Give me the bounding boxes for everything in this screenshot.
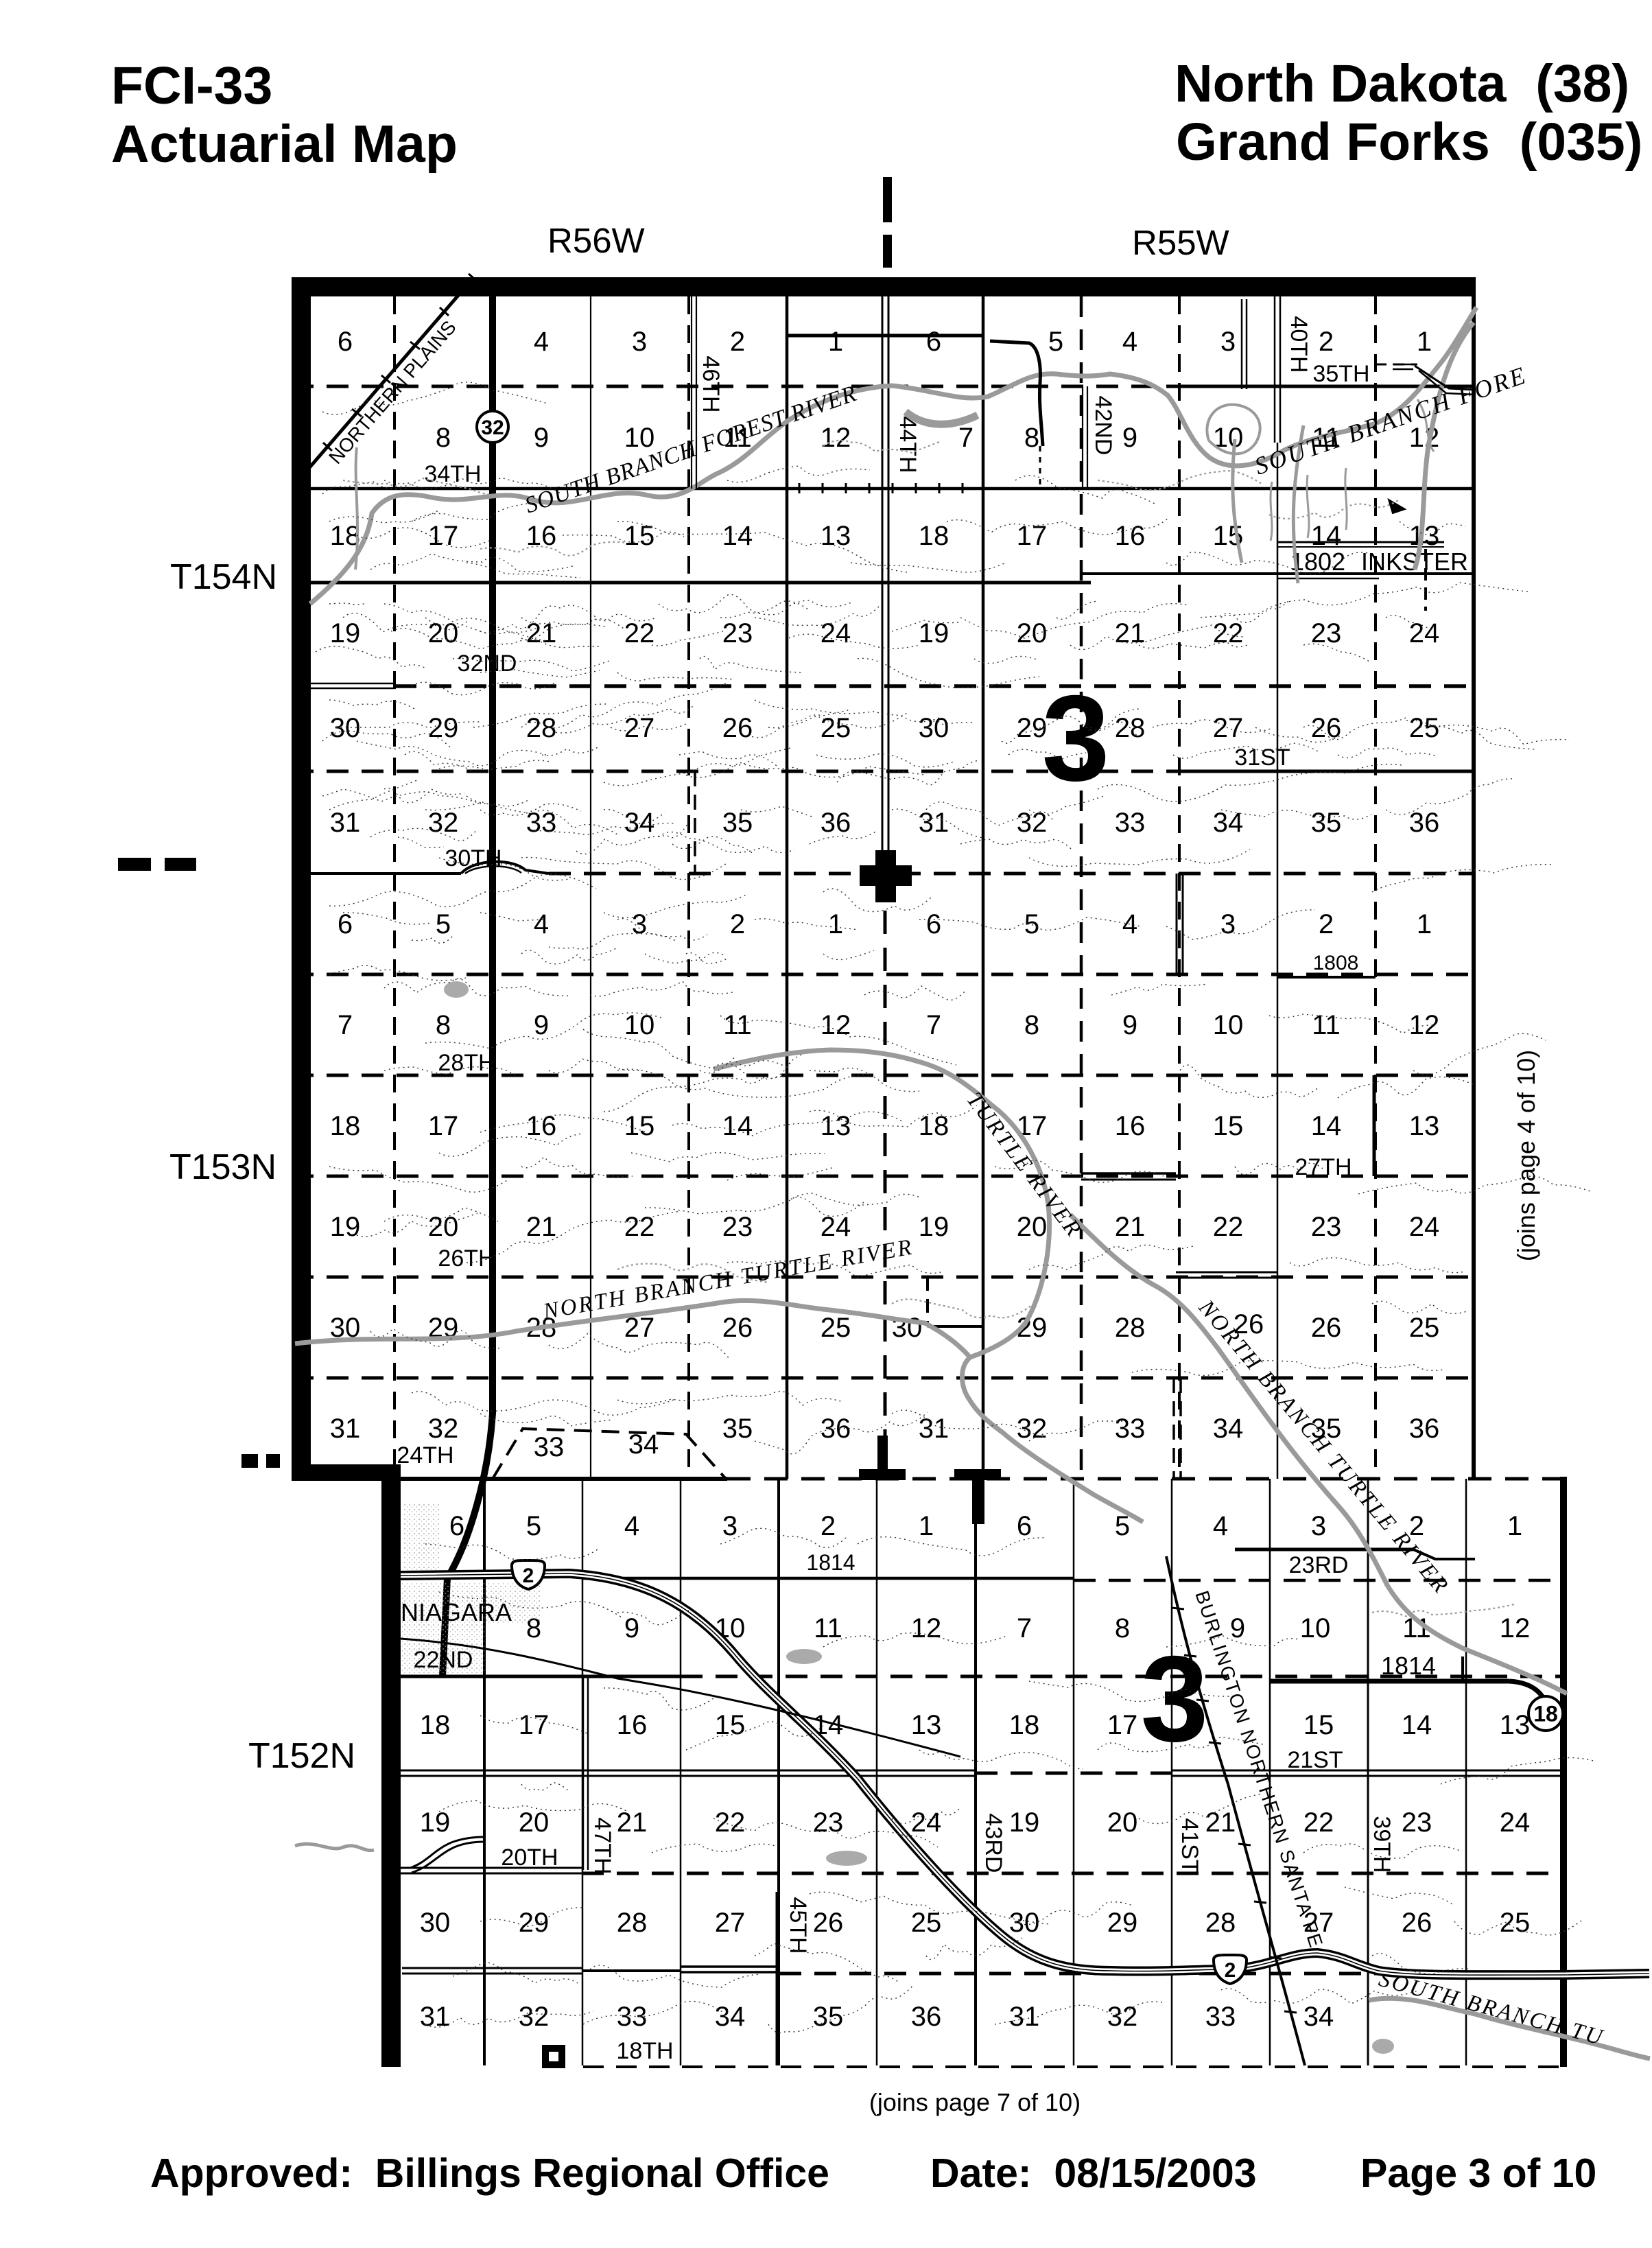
svg-text:28: 28 <box>617 1908 648 1938</box>
svg-text:28TH: 28TH <box>438 1050 495 1076</box>
svg-text:29: 29 <box>519 1908 550 1938</box>
svg-text:36: 36 <box>821 808 851 838</box>
svg-text:12: 12 <box>1500 1613 1531 1643</box>
svg-text:45TH: 45TH <box>785 1897 811 1954</box>
svg-text:32: 32 <box>1107 2002 1138 2032</box>
svg-text:46TH: 46TH <box>698 355 724 412</box>
svg-text:10: 10 <box>1213 1010 1244 1040</box>
svg-text:18TH: 18TH <box>616 2038 673 2064</box>
svg-text:10: 10 <box>624 1010 655 1040</box>
svg-text:13: 13 <box>1409 1111 1440 1141</box>
svg-text:12: 12 <box>1409 1010 1440 1040</box>
svg-text:22: 22 <box>624 618 655 648</box>
svg-text:31: 31 <box>919 808 949 838</box>
svg-text:26TH: 26TH <box>438 1245 495 1272</box>
svg-text:41ST: 41ST <box>1177 1818 1203 1873</box>
svg-text:24: 24 <box>1409 1212 1440 1242</box>
svg-text:35: 35 <box>722 808 753 838</box>
svg-text:23: 23 <box>813 1807 844 1838</box>
svg-text:14: 14 <box>722 521 753 551</box>
svg-text:23: 23 <box>722 618 753 648</box>
svg-text:34TH: 34TH <box>424 461 481 487</box>
svg-text:20: 20 <box>428 1212 459 1242</box>
svg-text:21: 21 <box>617 1807 648 1838</box>
svg-text:2: 2 <box>1319 327 1334 357</box>
svg-text:5: 5 <box>1024 909 1039 939</box>
svg-text:22ND: 22ND <box>414 1647 473 1673</box>
svg-text:10: 10 <box>624 423 655 453</box>
svg-text:24TH: 24TH <box>397 1442 453 1468</box>
svg-text:R56W: R56W <box>547 221 645 260</box>
svg-text:32: 32 <box>1017 808 1048 838</box>
svg-text:6: 6 <box>1017 1511 1032 1541</box>
svg-text:26: 26 <box>722 1313 753 1343</box>
svg-text:2: 2 <box>821 1511 836 1541</box>
svg-text:20: 20 <box>519 1807 550 1838</box>
svg-text:32: 32 <box>519 2002 550 2032</box>
svg-text:22: 22 <box>1213 1212 1244 1242</box>
svg-text:8: 8 <box>1024 1010 1039 1040</box>
svg-text:23: 23 <box>722 1212 753 1242</box>
svg-text:28: 28 <box>1115 1313 1146 1343</box>
svg-text:21ST: 21ST <box>1287 1747 1343 1773</box>
svg-text:18: 18 <box>1009 1710 1040 1740</box>
svg-text:26: 26 <box>722 713 753 743</box>
svg-text:12: 12 <box>821 423 851 453</box>
svg-text:20: 20 <box>428 618 459 648</box>
svg-text:34: 34 <box>1213 808 1244 838</box>
svg-text:20TH: 20TH <box>501 1845 558 1871</box>
svg-text:29: 29 <box>1107 1908 1138 1938</box>
svg-text:34: 34 <box>628 1429 659 1460</box>
svg-text:12: 12 <box>821 1010 851 1040</box>
svg-text:26: 26 <box>1402 1908 1432 1938</box>
svg-text:6: 6 <box>338 327 353 357</box>
svg-text:Page 3 of 10: Page 3 of 10 <box>1360 2151 1596 2196</box>
svg-text:17: 17 <box>428 1111 459 1141</box>
svg-text:24: 24 <box>821 618 851 648</box>
svg-text:24: 24 <box>821 1212 851 1242</box>
svg-text:42ND: 42ND <box>1090 396 1116 456</box>
svg-text:30: 30 <box>330 713 361 743</box>
svg-text:17: 17 <box>428 521 459 551</box>
svg-text:6: 6 <box>449 1511 464 1541</box>
svg-text:25: 25 <box>911 1908 942 1938</box>
svg-text:11: 11 <box>814 1613 842 1643</box>
svg-text:18: 18 <box>919 1111 949 1141</box>
svg-text:13: 13 <box>821 1111 851 1141</box>
svg-text:4: 4 <box>1122 909 1137 939</box>
svg-text:25: 25 <box>1409 713 1440 743</box>
svg-text:31: 31 <box>1009 2002 1040 2032</box>
svg-text:28: 28 <box>1205 1908 1236 1938</box>
svg-text:6: 6 <box>926 909 941 939</box>
svg-text:21: 21 <box>1205 1807 1236 1838</box>
svg-text:14: 14 <box>1311 521 1342 551</box>
svg-text:31: 31 <box>330 1414 361 1444</box>
svg-text:3: 3 <box>1220 327 1236 357</box>
svg-text:20: 20 <box>1017 618 1048 648</box>
svg-text:4: 4 <box>624 1511 639 1541</box>
svg-text:R55W: R55W <box>1132 223 1229 262</box>
svg-text:17: 17 <box>519 1710 550 1740</box>
svg-text:18: 18 <box>1533 1702 1558 1726</box>
svg-text:16: 16 <box>1115 521 1146 551</box>
svg-text:20: 20 <box>1107 1807 1138 1838</box>
svg-text:11: 11 <box>1312 1010 1341 1040</box>
svg-text:18: 18 <box>330 1111 361 1141</box>
svg-text:7: 7 <box>338 1010 353 1040</box>
svg-text:23: 23 <box>1311 1212 1342 1242</box>
svg-text:39TH: 39TH <box>1369 1816 1395 1873</box>
svg-text:21: 21 <box>1115 1212 1146 1242</box>
svg-text:15: 15 <box>624 1111 655 1141</box>
svg-text:36: 36 <box>821 1414 851 1444</box>
svg-text:33: 33 <box>534 1432 565 1462</box>
svg-text:Grand Forks (035): Grand Forks (035) <box>1176 113 1642 172</box>
svg-text:27: 27 <box>715 1908 746 1938</box>
svg-text:23RD: 23RD <box>1289 1552 1349 1578</box>
svg-text:26: 26 <box>1311 713 1342 743</box>
svg-text:(joins page 4 of 10): (joins page 4 of 10) <box>1512 1050 1540 1261</box>
svg-text:4: 4 <box>1122 327 1137 357</box>
svg-text:9: 9 <box>1230 1613 1245 1643</box>
svg-text:21: 21 <box>526 618 557 648</box>
svg-text:19: 19 <box>1009 1807 1040 1838</box>
svg-text:34: 34 <box>715 2002 746 2032</box>
svg-text:23: 23 <box>1402 1807 1432 1838</box>
svg-text:7: 7 <box>926 1010 941 1040</box>
svg-text:31ST: 31ST <box>1234 745 1290 771</box>
svg-text:33: 33 <box>1115 808 1146 838</box>
svg-text:5: 5 <box>436 909 451 939</box>
svg-text:FCI-33: FCI-33 <box>111 56 272 115</box>
svg-text:11: 11 <box>723 1010 752 1040</box>
svg-text:25: 25 <box>1409 1313 1440 1343</box>
svg-text:27TH: 27TH <box>1295 1154 1352 1180</box>
svg-text:32: 32 <box>428 1414 459 1444</box>
svg-text:NIAGARA: NIAGARA <box>401 1598 512 1626</box>
svg-text:30TH: 30TH <box>445 845 501 871</box>
svg-text:31: 31 <box>919 1414 949 1444</box>
svg-text:1808: 1808 <box>1313 952 1359 974</box>
svg-text:36: 36 <box>1409 1414 1440 1444</box>
svg-text:18: 18 <box>420 1710 451 1740</box>
svg-text:6: 6 <box>926 327 941 357</box>
svg-text:35: 35 <box>1311 808 1342 838</box>
svg-text:4: 4 <box>534 909 549 939</box>
svg-text:North Dakota (38): North Dakota (38) <box>1175 54 1629 113</box>
svg-text:2: 2 <box>1319 909 1334 939</box>
svg-text:3: 3 <box>632 909 647 939</box>
svg-text:23: 23 <box>1311 618 1342 648</box>
svg-text:17: 17 <box>1017 521 1048 551</box>
svg-text:22: 22 <box>715 1807 746 1838</box>
svg-text:34: 34 <box>624 808 655 838</box>
svg-text:12: 12 <box>911 1613 942 1643</box>
svg-text:1: 1 <box>1417 909 1432 939</box>
svg-text:1: 1 <box>1507 1511 1522 1541</box>
svg-text:18: 18 <box>919 521 949 551</box>
svg-text:1: 1 <box>1417 327 1432 357</box>
svg-text:14: 14 <box>1402 1710 1432 1740</box>
svg-text:8: 8 <box>1115 1613 1130 1643</box>
svg-text:1802: 1802 <box>1290 548 1345 576</box>
svg-text:13: 13 <box>911 1710 942 1740</box>
svg-text:30: 30 <box>420 1908 451 1938</box>
svg-text:Date: 08/15/2003: Date: 08/15/2003 <box>930 2151 1257 2196</box>
svg-text:3: 3 <box>1141 1630 1209 1767</box>
svg-text:6: 6 <box>338 909 353 939</box>
svg-text:30: 30 <box>919 713 949 743</box>
svg-text:21: 21 <box>1115 618 1146 648</box>
svg-text:14: 14 <box>722 1111 753 1141</box>
svg-text:2: 2 <box>730 909 745 939</box>
svg-text:7: 7 <box>958 423 973 453</box>
svg-text:2: 2 <box>730 327 745 357</box>
svg-text:40TH: 40TH <box>1286 316 1312 373</box>
svg-text:21: 21 <box>526 1212 557 1242</box>
svg-text:3: 3 <box>1220 909 1236 939</box>
svg-text:9: 9 <box>534 1010 549 1040</box>
svg-text:35: 35 <box>813 2002 844 2032</box>
svg-text:2: 2 <box>523 1565 534 1587</box>
svg-text:34: 34 <box>1303 2002 1334 2032</box>
svg-text:24: 24 <box>911 1807 942 1838</box>
svg-text:15: 15 <box>715 1710 746 1740</box>
svg-text:15: 15 <box>624 521 655 551</box>
svg-text:32: 32 <box>428 808 459 838</box>
svg-text:9: 9 <box>1122 1010 1137 1040</box>
svg-text:1: 1 <box>919 1511 934 1541</box>
svg-text:33: 33 <box>1115 1414 1146 1444</box>
svg-text:33: 33 <box>617 2002 648 2032</box>
svg-text:3: 3 <box>632 327 647 357</box>
svg-text:12: 12 <box>1409 423 1440 453</box>
svg-text:10: 10 <box>1300 1613 1331 1643</box>
svg-text:26: 26 <box>1311 1313 1342 1343</box>
svg-text:19: 19 <box>919 618 949 648</box>
svg-text:22: 22 <box>1303 1807 1334 1838</box>
svg-text:34: 34 <box>1213 1414 1244 1444</box>
svg-text:36: 36 <box>1409 808 1440 838</box>
svg-text:13: 13 <box>821 521 851 551</box>
svg-text:25: 25 <box>1500 1908 1531 1938</box>
svg-text:20: 20 <box>1017 1212 1048 1242</box>
svg-text:15: 15 <box>1303 1710 1334 1740</box>
svg-text:36: 36 <box>911 2002 942 2032</box>
svg-text:32ND: 32ND <box>458 651 517 677</box>
svg-text:25: 25 <box>821 1313 851 1343</box>
svg-text:Approved: Billings Regional O: Approved: Billings Regional Office <box>150 2151 829 2196</box>
svg-text:25: 25 <box>821 713 851 743</box>
svg-text:32: 32 <box>481 417 504 439</box>
svg-text:9: 9 <box>1122 423 1137 453</box>
svg-text:3: 3 <box>1311 1511 1326 1541</box>
svg-text:19: 19 <box>420 1807 451 1838</box>
svg-text:19: 19 <box>330 1212 361 1242</box>
svg-text:1814: 1814 <box>806 1550 855 1575</box>
svg-text:8: 8 <box>1024 423 1039 453</box>
svg-text:5: 5 <box>526 1511 541 1541</box>
svg-text:9: 9 <box>534 423 549 453</box>
svg-text:32: 32 <box>1017 1414 1048 1444</box>
svg-text:44TH: 44TH <box>895 416 921 473</box>
svg-text:3: 3 <box>1042 670 1110 806</box>
svg-text:26: 26 <box>813 1908 844 1938</box>
svg-text:35TH: 35TH <box>1312 361 1369 387</box>
svg-text:1: 1 <box>828 327 843 357</box>
svg-text:8: 8 <box>436 423 451 453</box>
svg-text:27: 27 <box>1213 713 1244 743</box>
svg-text:T153N: T153N <box>169 1147 276 1187</box>
svg-text:35: 35 <box>722 1414 753 1444</box>
svg-text:T154N: T154N <box>170 557 277 597</box>
svg-text:2: 2 <box>1225 1959 1236 1982</box>
svg-text:16: 16 <box>1115 1111 1146 1141</box>
svg-text:8: 8 <box>436 1010 451 1040</box>
svg-text:(joins page 7 of 10): (joins page 7 of 10) <box>869 2088 1081 2116</box>
svg-text:19: 19 <box>330 618 361 648</box>
svg-text:7: 7 <box>1017 1613 1032 1643</box>
svg-text:1: 1 <box>828 909 843 939</box>
svg-text:5: 5 <box>1048 327 1063 357</box>
svg-text:T152N: T152N <box>248 1736 355 1776</box>
svg-text:9: 9 <box>624 1613 639 1643</box>
svg-text:43RD: 43RD <box>980 1814 1006 1873</box>
svg-text:4: 4 <box>534 327 549 357</box>
svg-text:14: 14 <box>1311 1111 1342 1141</box>
svg-text:4: 4 <box>1213 1511 1228 1541</box>
svg-text:16: 16 <box>617 1710 648 1740</box>
svg-text:15: 15 <box>1213 1111 1244 1141</box>
svg-text:1814: 1814 <box>1381 1652 1436 1680</box>
svg-text:31: 31 <box>330 808 361 838</box>
svg-text:33: 33 <box>1205 2002 1236 2032</box>
svg-text:28: 28 <box>526 713 557 743</box>
svg-text:19: 19 <box>919 1212 949 1242</box>
svg-text:29: 29 <box>428 713 459 743</box>
svg-text:17: 17 <box>1107 1710 1138 1740</box>
svg-text:3: 3 <box>722 1511 737 1541</box>
svg-text:24: 24 <box>1500 1807 1531 1838</box>
svg-text:Actuarial Map: Actuarial Map <box>111 115 458 174</box>
svg-text:22: 22 <box>1213 618 1244 648</box>
svg-text:22: 22 <box>624 1212 655 1242</box>
svg-text:47TH: 47TH <box>589 1817 615 1874</box>
svg-text:16: 16 <box>526 1111 557 1141</box>
svg-text:13: 13 <box>1500 1710 1531 1740</box>
